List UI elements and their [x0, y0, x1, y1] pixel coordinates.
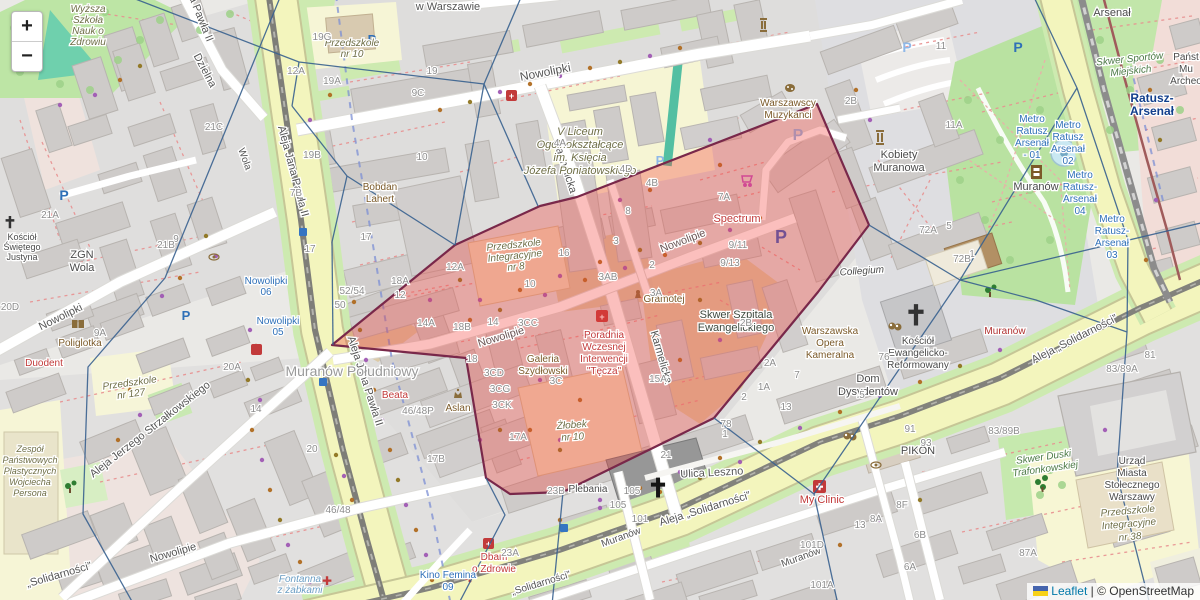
svg-text:5: 5 — [946, 221, 952, 232]
svg-text:1: 1 — [722, 429, 728, 440]
svg-text:17: 17 — [304, 244, 316, 255]
svg-text:91: 91 — [904, 424, 916, 435]
svg-text:76: 76 — [878, 352, 890, 363]
svg-text:5: 5 — [859, 390, 865, 401]
svg-text:3: 3 — [613, 236, 619, 247]
svg-text:93: 93 — [920, 438, 932, 449]
svg-text:21A: 21A — [41, 210, 59, 221]
svg-text:WyższaSzkołaNauk oZdrowiu: WyższaSzkołaNauk oZdrowiu — [69, 4, 106, 48]
svg-text:✚: ✚ — [322, 574, 332, 588]
svg-text:10: 10 — [416, 152, 428, 163]
svg-text:20D: 20D — [1, 302, 19, 313]
svg-text:2B: 2B — [740, 318, 753, 329]
svg-text:4A: 4A — [554, 138, 567, 149]
svg-text:P: P — [59, 187, 68, 203]
svg-text:21: 21 — [660, 450, 672, 461]
svg-text:105: 105 — [624, 486, 641, 497]
svg-text:PoradniaWczesnejInterwencji"Tę: PoradniaWczesnejInterwencji"Tęcza" — [580, 330, 628, 377]
svg-text:9C: 9C — [412, 88, 425, 99]
svg-text:Muranów: Muranów — [1013, 181, 1058, 193]
svg-text:3CK: 3CK — [492, 400, 512, 411]
svg-text:14: 14 — [250, 404, 262, 415]
svg-text:46/48P: 46/48P — [402, 406, 434, 417]
svg-text:21C: 21C — [205, 122, 223, 133]
svg-text:+: + — [509, 91, 514, 101]
svg-text:My Clinic: My Clinic — [800, 494, 845, 506]
svg-text:2B: 2B — [845, 96, 858, 107]
svg-text:17A: 17A — [509, 432, 527, 443]
svg-text:KościółŚwiętegoJustyna: KościółŚwiętegoJustyna — [3, 232, 40, 262]
svg-text:50: 50 — [334, 300, 346, 311]
svg-text:9A: 9A — [94, 328, 107, 339]
svg-text:83/89A: 83/89A — [1106, 364, 1138, 375]
svg-text:✝: ✝ — [3, 215, 16, 232]
svg-text:7: 7 — [794, 370, 800, 381]
svg-text:Fontannaz żabkami: Fontannaz żabkami — [276, 574, 323, 596]
svg-text:20A: 20A — [223, 362, 241, 373]
svg-text:52/54: 52/54 — [339, 286, 364, 297]
svg-text:3CG: 3CG — [490, 384, 511, 395]
svg-text:105: 105 — [610, 500, 627, 511]
svg-text:4B: 4B — [646, 178, 659, 189]
svg-text:w Warszawie: w Warszawie — [415, 1, 480, 13]
svg-text:21B: 21B — [157, 240, 175, 251]
svg-text:P: P — [1013, 39, 1022, 55]
svg-text:19G: 19G — [313, 32, 332, 43]
svg-text:Muranów Południowy: Muranów Południowy — [285, 363, 418, 379]
svg-text:72A: 72A — [919, 225, 937, 236]
svg-text:2: 2 — [649, 260, 655, 271]
svg-text:✝: ✝ — [647, 473, 669, 503]
svg-text:BobdanLahert: BobdanLahert — [363, 182, 397, 205]
svg-text:Poliglotka: Poliglotka — [58, 338, 102, 349]
svg-text:83/89B: 83/89B — [988, 426, 1020, 437]
svg-text:101: 101 — [632, 514, 649, 525]
svg-text:8F: 8F — [896, 500, 908, 511]
svg-text:1A: 1A — [758, 382, 771, 393]
svg-text:9/13: 9/13 — [720, 258, 740, 269]
svg-text:WarszawscyMuzykanci: WarszawscyMuzykanci — [760, 98, 816, 121]
svg-text:12: 12 — [394, 290, 406, 301]
svg-text:18: 18 — [466, 354, 478, 365]
svg-text:3C: 3C — [550, 376, 563, 387]
svg-text:78: 78 — [720, 419, 732, 430]
svg-text:Aslan: Aslan — [445, 403, 470, 414]
svg-text:18A: 18A — [391, 276, 409, 287]
svg-text:ZGNWola: ZGNWola — [70, 249, 96, 274]
svg-text:101A: 101A — [810, 580, 834, 591]
svg-text:Plebania: Plebania — [569, 484, 608, 495]
svg-text:2: 2 — [741, 392, 747, 403]
svg-text:10: 10 — [524, 279, 536, 290]
svg-text:8: 8 — [625, 206, 631, 217]
svg-text:81: 81 — [1144, 350, 1156, 361]
svg-text:3AB: 3AB — [599, 272, 618, 283]
svg-text:6B: 6B — [914, 530, 927, 541]
svg-text:14: 14 — [487, 317, 499, 328]
svg-text:23A: 23A — [501, 548, 519, 559]
svg-text:87A: 87A — [1019, 548, 1037, 559]
svg-text:23B: 23B — [547, 486, 565, 497]
svg-text:3CC: 3CC — [518, 318, 538, 329]
svg-text:Arsenał: Arsenał — [1093, 7, 1131, 19]
svg-text:19A: 19A — [323, 76, 341, 87]
svg-text:7B: 7B — [290, 188, 303, 199]
svg-text:17B: 17B — [427, 454, 445, 465]
svg-text:Ratusz-Arsenał: Ratusz-Arsenał — [1130, 91, 1175, 118]
svg-text:20: 20 — [306, 444, 318, 455]
svg-text:9/11: 9/11 — [729, 240, 748, 251]
svg-text:P: P — [902, 39, 911, 55]
svg-text:13: 13 — [780, 402, 792, 413]
svg-text:46/48: 46/48 — [325, 505, 350, 516]
svg-text:Muranów: Muranów — [984, 326, 1026, 337]
svg-text:3A: 3A — [650, 288, 663, 299]
svg-text:Spectrum: Spectrum — [713, 213, 760, 225]
svg-text:6A: 6A — [904, 562, 917, 573]
svg-text:8A: 8A — [870, 514, 883, 525]
svg-text:2A: 2A — [764, 358, 777, 369]
svg-text:Beata: Beata — [382, 390, 409, 401]
svg-text:15A: 15A — [649, 374, 667, 385]
svg-text:4D: 4D — [620, 164, 633, 175]
svg-text:14A: 14A — [417, 318, 435, 329]
svg-text:101D: 101D — [800, 540, 824, 551]
svg-text:11: 11 — [936, 41, 947, 52]
svg-text:19: 19 — [426, 66, 438, 77]
svg-text:12A: 12A — [287, 66, 305, 77]
svg-text:17: 17 — [360, 232, 372, 243]
svg-text:12A: 12A — [446, 262, 464, 273]
svg-text:✝: ✝ — [904, 300, 927, 331]
svg-text:13: 13 — [854, 520, 866, 531]
svg-text:P: P — [182, 308, 191, 323]
svg-text:11A: 11A — [945, 120, 962, 131]
svg-text:16: 16 — [558, 248, 570, 259]
svg-text:Skwer SzpitalaEwangelickiego: Skwer SzpitalaEwangelickiego — [698, 309, 774, 334]
svg-text:Duodent: Duodent — [25, 358, 63, 369]
svg-text:72B: 72B — [953, 254, 971, 265]
svg-text:18B: 18B — [453, 322, 471, 333]
svg-text:7A: 7A — [718, 192, 731, 203]
svg-text:19B: 19B — [303, 150, 321, 161]
svg-text:3CD: 3CD — [484, 368, 504, 379]
